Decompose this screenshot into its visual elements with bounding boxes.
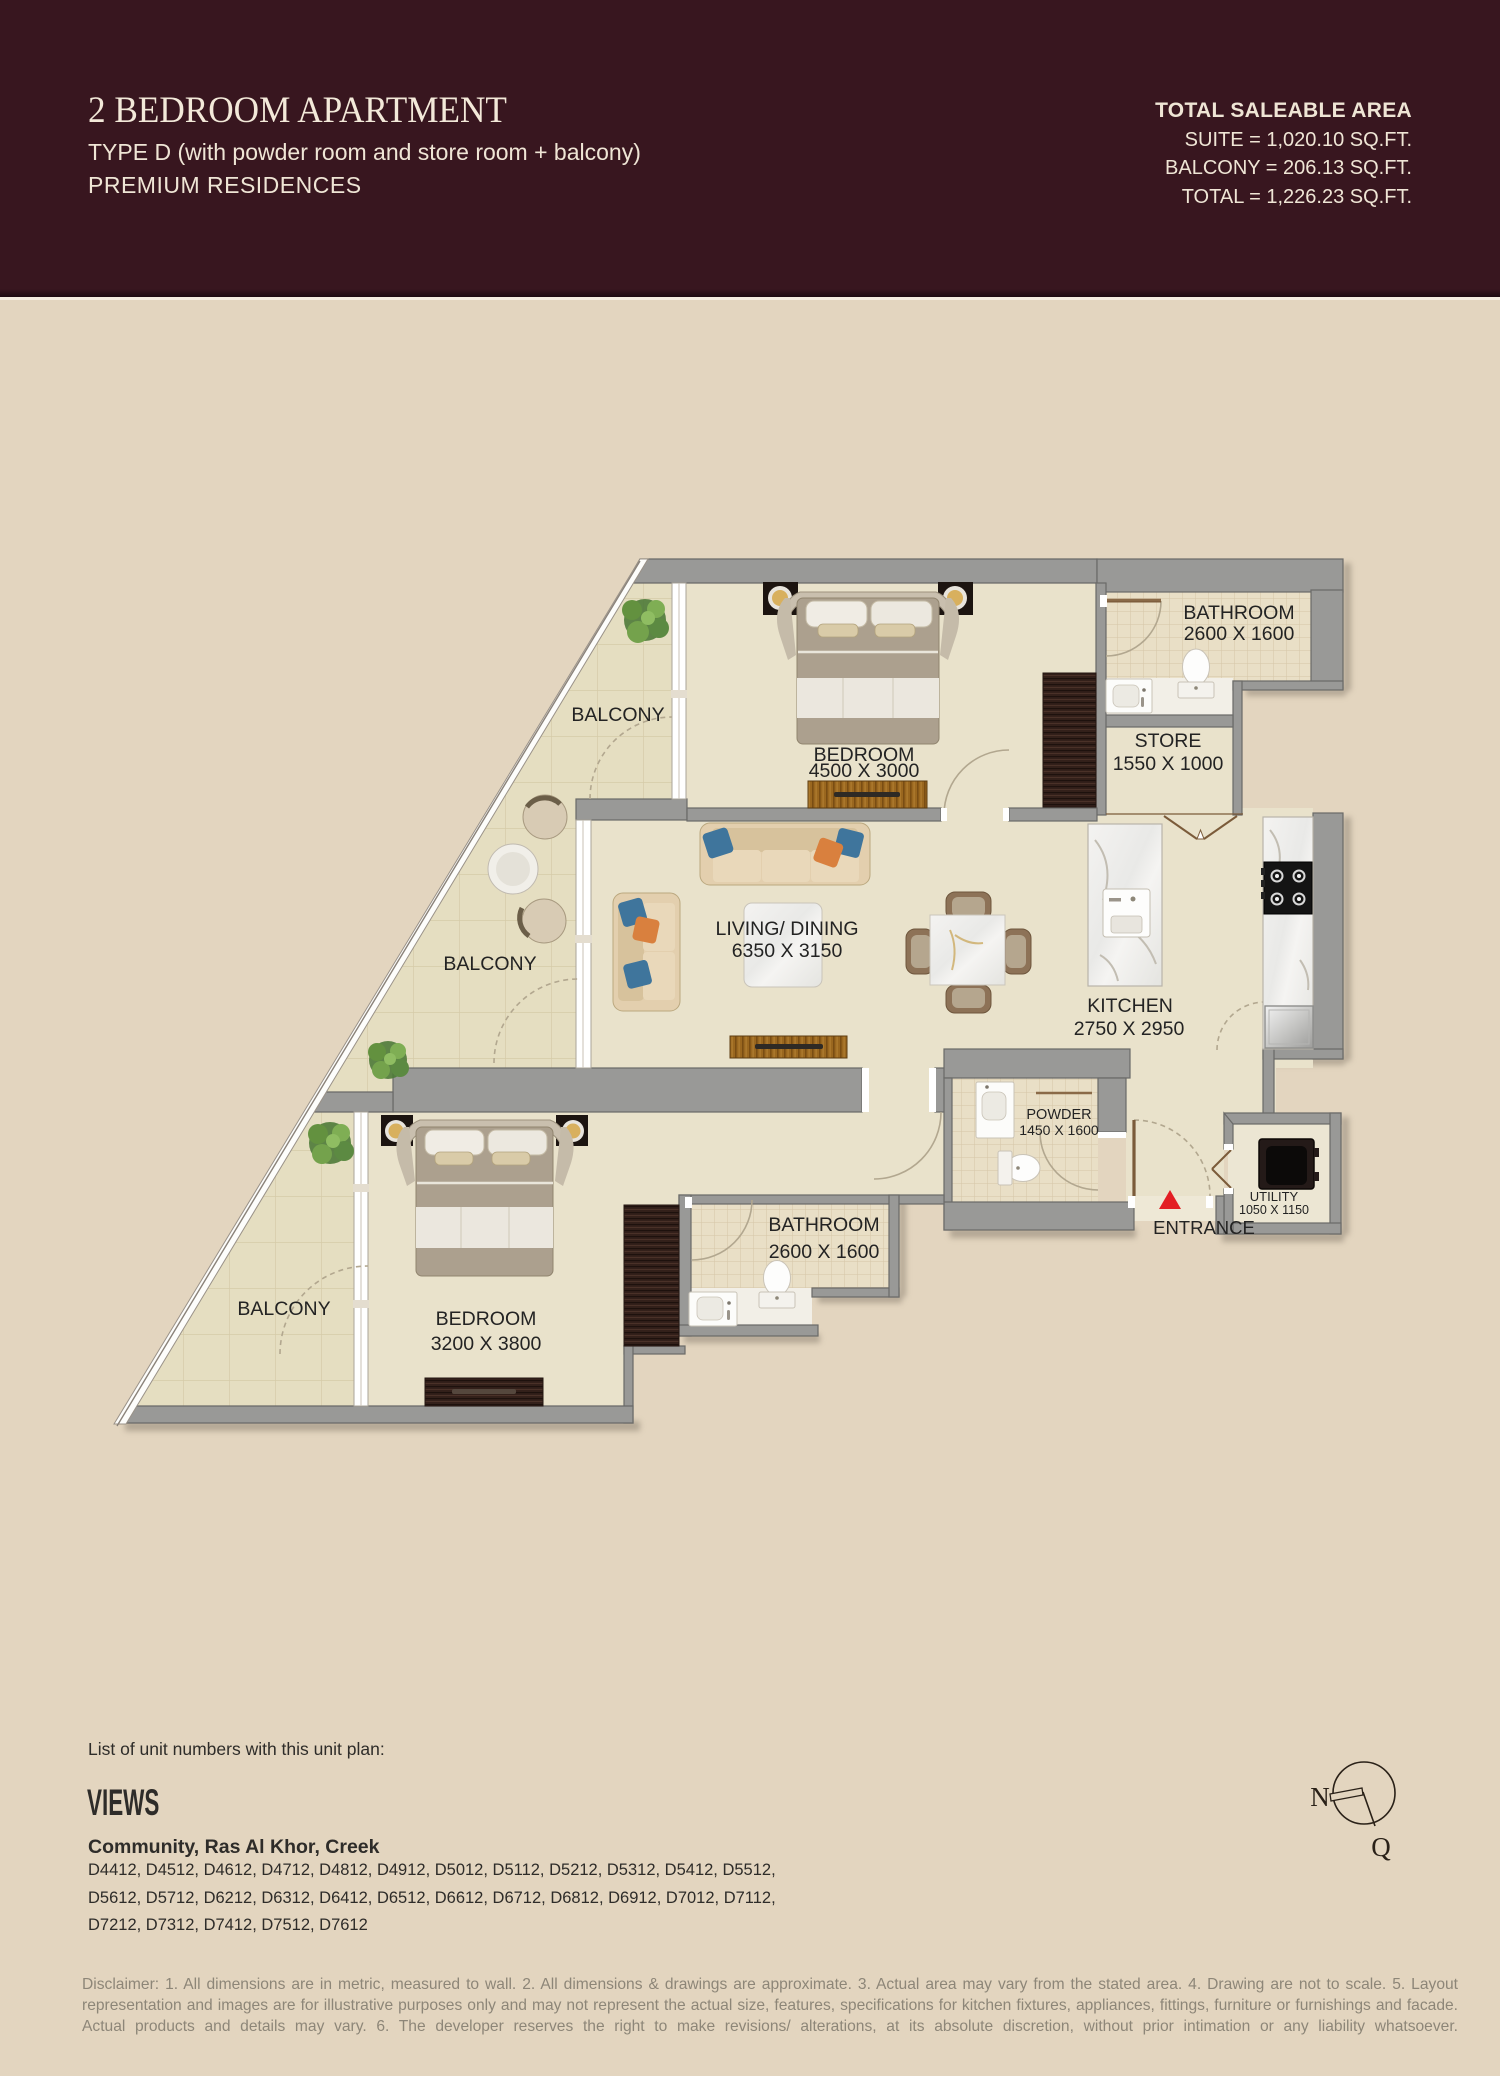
svg-text:BALCONY: BALCONY [443,953,536,975]
svg-text:4500 X 3000: 4500 X 3000 [809,760,920,782]
svg-text:BATHROOM: BATHROOM [1183,602,1294,624]
svg-text:2600 X 1600: 2600 X 1600 [769,1241,880,1263]
svg-text:3200 X 3800: 3200 X 3800 [431,1333,542,1355]
svg-text:BALCONY: BALCONY [571,704,664,726]
svg-text:KITCHEN: KITCHEN [1087,995,1173,1017]
svg-text:Q: Q [1371,1832,1391,1862]
svg-text:2750 X 2950: 2750 X 2950 [1074,1018,1185,1040]
svg-text:BATHROOM: BATHROOM [768,1214,879,1236]
svg-text:1450 X 1600: 1450 X 1600 [1019,1122,1099,1138]
svg-text:BEDROOM: BEDROOM [436,1308,537,1330]
svg-text:1050 X 1150: 1050 X 1150 [1239,1203,1309,1217]
svg-text:LIVING/ DINING: LIVING/ DINING [715,918,858,940]
svg-text:ENTRANCE: ENTRANCE [1153,1217,1255,1238]
svg-text:POWDER: POWDER [1026,1107,1091,1123]
svg-text:UTILITY: UTILITY [1250,1189,1299,1204]
svg-text:N: N [1310,1782,1330,1812]
svg-text:6350 X 3150: 6350 X 3150 [732,940,843,962]
svg-text:BALCONY: BALCONY [237,1298,330,1320]
svg-text:STORE: STORE [1135,730,1202,752]
svg-text:1550 X 1000: 1550 X 1000 [1113,753,1224,775]
svg-text:2600 X 1600: 2600 X 1600 [1184,623,1295,645]
